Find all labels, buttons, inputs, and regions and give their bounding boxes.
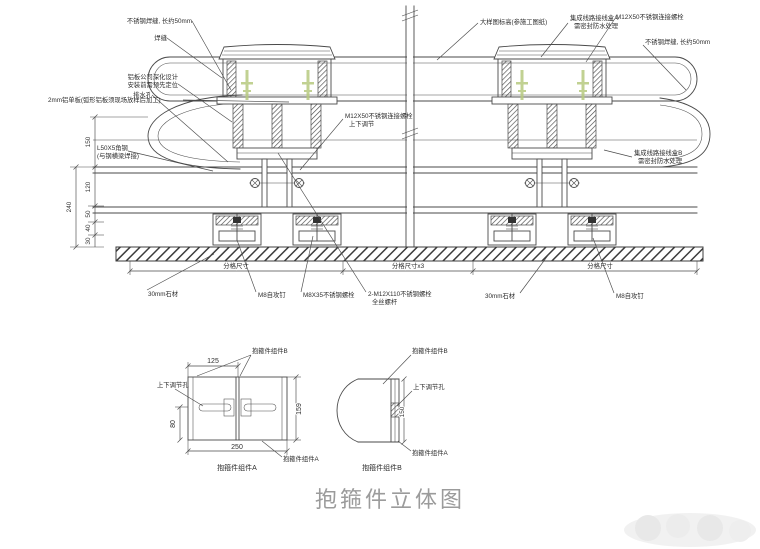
label-junction-a-1: 集成线路接线盒A [570,13,619,22]
dim-240: 240 [66,201,73,212]
detail-a-caption: 抱箍件组件A [217,463,257,472]
detail-b-label-a: 抱箍件组件A [412,448,448,457]
dim-150: 150 [85,136,92,147]
bottom-dimensions: 分格尺寸 分格尺寸x3 分格尺寸 [128,261,700,275]
label-bolt-m12x50-left-1: M12X50不锈钢连接螺栓 [345,111,413,120]
technical-drawing: 150 240 120 50 40 30 分格尺寸 分格尺寸x3 分格尺寸 不锈… [0,0,760,549]
label-panel-note-1: 铝板公司深化设计 [128,72,179,81]
label-angle-steel-1: L50X5角钢 [97,143,128,152]
label-bolt-m12x50-right: M12X50不锈钢连接螺栓 [616,12,684,21]
left-dimensions: 150 240 120 50 40 30 [66,115,148,250]
detail-b: 150 抱箍件组件B 上下调节孔 抱箍件组件A 抱箍件组件B [337,346,448,472]
label-stone-right: 30mm石材 [485,291,516,300]
label-elevation-note: 大样图标高(参施工图纸) [480,17,547,26]
label-weld-top-left: 不锈钢焊缝, 长约50mm [127,16,192,25]
label-bolt-m8x35: M8X35不锈钢螺栓 [303,290,355,299]
center-pole [402,6,418,247]
beams [93,140,697,213]
label-bolt-m12x50-left-2: 上下调节 [349,119,374,128]
clamp-assembly-right [492,45,612,208]
label-junction-b-2: 需密封防水处理 [638,156,683,165]
detail-a-label-b: 抱箍件组件B [252,346,288,355]
stone-band [116,247,703,261]
detail-a-dim-bottom: 250 [231,444,243,451]
anchor-clusters [213,214,616,245]
dim-span-right: 分格尺寸 [587,261,613,270]
main-section-view [93,6,710,261]
label-alum-panel: 2mm铝单板(弧形铝板须现场放样后加工) [48,95,161,104]
detail-a-dim-left: 80 [170,420,177,428]
detail-a-label-a: 抱箍件组件A [283,454,319,463]
dim-50: 50 [85,210,92,218]
detail-b-label-hole: 上下调节孔 [413,382,445,391]
dim-120: 120 [85,181,92,192]
callouts: 不锈钢焊缝, 长约50mm 焊缝 铝板公司深化设计 安装前需预先定位 排水孔 2… [48,12,710,306]
detail-a-dim-right: 159 [296,403,303,415]
label-weld-seam: 焊缝 [154,33,167,42]
label-weld-top-right: 不锈钢焊缝, 长约50mm [645,37,710,46]
dim-40: 40 [85,224,92,232]
label-screw-m8-left: M8自攻钉 [258,290,286,299]
detail-a-label-hole: 上下调节孔 [157,380,189,389]
watermark [624,513,756,547]
detail-b-dim: 150 [399,406,406,417]
label-panel-note-2: 安装前需预先定位 [128,80,179,89]
detail-a: 125 159 80 250 抱箍件组件B 上下调节孔 抱箍件组件A 抱箍件组件… [157,346,319,472]
dim-30: 30 [85,237,92,245]
detail-b-caption: 抱箍件组件B [362,463,402,472]
panel-curve-left [148,95,242,169]
drawing-page: 150 240 120 50 40 30 分格尺寸 分格尺寸x3 分格尺寸 不锈… [0,0,760,549]
clamp-assembly-left [217,45,337,208]
label-bolt-m12x110-2: 全丝螺杆 [372,297,398,306]
detail-a-dim-top: 125 [207,358,219,365]
label-screw-m8-right: M8自攻钉 [616,291,644,300]
detail-b-label-b: 抱箍件组件B [412,346,448,355]
drawing-title: 抱箍件立体图 [315,487,465,512]
label-junction-b-1: 集成线路接线盒B [634,148,682,157]
label-angle-steel-2: (与钢横梁焊接) [97,151,139,160]
label-stone-left: 30mm石材 [148,289,179,298]
dim-span-mid: 分格尺寸x3 [392,261,425,270]
label-bolt-m12x110-1: 2-M12X110不锈钢螺栓 [368,289,432,298]
